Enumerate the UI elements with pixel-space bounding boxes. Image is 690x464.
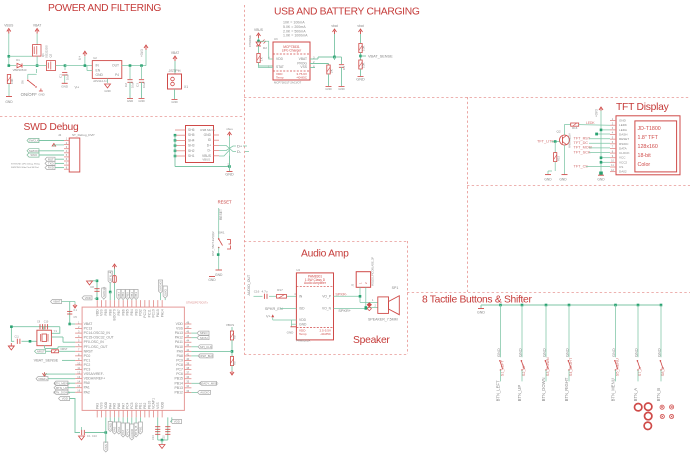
svg-text:PC9: PC9 [176,358,183,362]
svg-text:S8_B: S8_B [661,366,665,376]
svg-text:GND: GND [138,99,144,103]
svg-text:Q2: Q2 [557,130,561,134]
svg-text:GND: GND [338,87,344,91]
svg-text:OUT: OUT [112,64,119,68]
svg-text:C8: C8 [90,285,94,289]
svg-text:MISO: MISO [200,331,208,335]
svg-text:P4: P4 [115,73,119,77]
svg-text:PB12: PB12 [175,390,183,394]
svg-text:BTN_DOWN: BTN_DOWN [541,377,546,401]
svg-text:LEDK: LEDK [619,123,627,127]
svg-text:SWCLK: SWCLK [102,287,106,297]
svg-text:0.1: 0.1 [74,309,78,312]
svg-text:U2: U2 [93,56,97,60]
svg-text:PA0: PA0 [84,381,90,385]
svg-text:MOSI: MOSI [200,336,208,340]
svg-text:BTN_RIGHT: BTN_RIGHT [564,377,569,401]
svg-text:PC13: PC13 [84,327,93,331]
svg-text:vbat: vbat [357,24,363,28]
svg-text:PA10: PA10 [175,345,183,349]
svg-text:PA7: PA7 [121,429,125,435]
svg-text:VDDA/VREF+: VDDA/VREF+ [84,377,106,381]
svg-text:SWDIO: SWDIO [159,280,163,291]
svg-text:U4: U4 [296,268,300,272]
svg-text:BTN_UP: BTN_UP [56,386,68,390]
svg-text:10K: 10K [362,46,366,51]
svg-text:C13: C13 [92,435,97,438]
svg-text:GND: GND [559,178,567,182]
svg-text:VBUS: VBUS [254,28,264,32]
svg-text:10uF: 10uF [66,73,70,80]
svg-text:GND: GND [477,311,485,315]
svg-text:GND: GND [518,348,523,357]
svg-text:SP1: SP1 [392,286,399,290]
svg-text:VBAT_SENSE: VBAT_SENSE [34,359,59,363]
svg-text:Color: Color [638,162,651,168]
svg-text:+3V3: +3V3 [595,109,599,117]
svg-text:VBAT: VBAT [171,51,179,55]
svg-text:BTN_A: BTN_A [108,272,112,281]
svg-text:PC14-OSC32_IN: PC14-OSC32_IN [84,331,111,335]
svg-text:PA8: PA8 [177,354,183,358]
svg-text:AUDIO: AUDIO [200,391,210,395]
svg-text:GND: GND [325,87,331,91]
svg-text:GND: GND [215,273,223,277]
svg-text:GND: GND [611,348,616,357]
svg-text:GND: GND [104,89,110,93]
svg-text:SH1: SH1 [188,154,195,158]
svg-text:10uF: 10uF [142,81,146,88]
svg-text:VCC2: VCC2 [619,160,627,164]
svg-text:Speaker: Speaker [353,335,390,346]
svg-text:1.0K = 1000mA: 1.0K = 1000mA [283,34,308,38]
svg-text:D+: D+ [207,143,211,147]
svg-text:BTN_MENU: BTN_MENU [611,378,616,401]
svg-text:PA13: PA13 [175,331,183,335]
svg-text:GND: GND [5,100,13,104]
svg-text:TFT_SCK: TFT_SCK [574,150,591,154]
svg-text:D1: D1 [16,58,20,62]
svg-text:RESET: RESET [619,137,629,141]
svg-text:VREF+: VREF+ [38,377,48,381]
svg-text:CHARGE: CHARGE [248,35,252,47]
svg-text:5.0K = 200mA: 5.0K = 200mA [283,25,306,29]
svg-text:VBAT: VBAT [33,24,41,28]
svg-text:GND: GND [542,348,547,357]
svg-text:MCP73831T-2ACI/OT: MCP73831T-2ACI/OT [274,81,302,85]
svg-text:VSS: VSS [300,65,307,69]
svg-text:VO_N: VO_N [322,306,332,310]
svg-text:VBAT: VBAT [299,57,307,61]
svg-text:VDD: VDD [62,397,68,401]
svg-text:1.8" TFT: 1.8" TFT [638,135,659,141]
svg-text:DATA: DATA [619,146,628,150]
svg-text:Temp: Temp [299,332,307,336]
svg-text:PB6: PB6 [121,292,125,298]
svg-text:10K: 10K [10,79,14,84]
svg-text:VBUS: VBUS [226,323,234,327]
svg-text:BTN_A: BTN_A [633,388,638,402]
svg-text:GND: GND [127,99,133,103]
svg-text:18-bit: 18-bit [638,153,652,159]
svg-text:DASH: DASH [619,133,627,137]
svg-text:Temp: Temp [276,76,284,80]
svg-text:C1: C1 [59,74,63,78]
svg-text:BTN_UP: BTN_UP [517,385,522,402]
svg-text:BTN_MENU: BTN_MENU [54,381,70,385]
svg-text:PC15-OSC32_OUT: PC15-OSC32_OUT [84,336,115,340]
svg-text:USB Micro: USB Micro [200,128,215,132]
svg-text:SH4: SH4 [188,138,195,142]
svg-text:GND: GND [565,348,570,357]
svg-text:V+: V+ [266,315,272,319]
svg-text:2K: 2K [330,69,334,73]
svg-text:R15: R15 [556,155,560,161]
svg-text:SW1: SW1 [218,231,225,235]
svg-text:AUDIO_OUT: AUDIO_OUT [247,274,251,296]
svg-text:SPI_CLK: SPI_CLK [200,345,212,349]
svg-text:PC0: PC0 [84,354,91,358]
svg-text:RST_TACT-EVQQ2: RST_TACT-EVQQ2 [211,231,215,256]
svg-text:PA12: PA12 [175,336,183,340]
svg-text:PA1: PA1 [84,386,90,390]
svg-text:S7_A: S7_A [638,366,642,376]
svg-text:SH3: SH3 [188,144,195,148]
svg-text:VO_P: VO_P [322,294,332,298]
svg-text:READY_MISO: READY_MISO [199,381,219,385]
svg-text:Y1: Y1 [54,329,58,333]
svg-text:10uF: 10uF [131,81,135,88]
svg-text:PB1: PB1 [139,426,143,432]
svg-text:SPKR-: SPKR- [335,292,347,296]
svg-text:-40-85C: -40-85C [296,76,308,80]
svg-text:STM32F070C6Tx: STM32F070C6Tx [186,301,209,305]
svg-text:RESET: RESET [218,200,232,205]
svg-text:RS/DC: RS/DC [619,142,629,146]
svg-text:GND: GND [38,93,44,97]
svg-text:SH6: SH6 [188,128,195,132]
svg-text:PC1: PC1 [84,358,91,362]
svg-text:SH5: SH5 [188,133,195,137]
svg-text:SWO: SWO [30,153,38,157]
svg-text:2: 2 [364,282,368,284]
svg-text:PB14: PB14 [175,381,183,385]
svg-text:J4: J4 [58,133,62,137]
svg-text:4.7u: 4.7u [262,290,268,294]
svg-text:2.0K = 500mA: 2.0K = 500mA [283,29,306,33]
svg-text:RXD: RXD [48,166,54,170]
svg-text:PAM8301A: PAM8301A [296,339,310,343]
svg-text:PF1-OSC_OUT: PF1-OSC_OUT [84,345,109,349]
svg-text:SPKR+: SPKR+ [338,309,351,313]
svg-text:NRST: NRST [37,349,45,353]
svg-text:POWER AND FILTERING: POWER AND FILTERING [48,3,161,14]
svg-text:TFT Display: TFT Display [616,102,670,113]
svg-text:GND: GND [597,178,605,182]
svg-text:D-: D- [208,149,211,153]
svg-text:USB AND BATTERY CHARGING: USB AND BATTERY CHARGING [274,7,420,18]
svg-text:DISP_BLK: DISP_BLK [199,354,213,358]
svg-text:S1_LEFT: S1_LEFT [501,359,505,376]
svg-text:GND: GND [619,119,627,123]
svg-text:JSTPH: JSTPH [168,69,180,73]
svg-text:R9: R9 [233,361,237,365]
svg-text:R16: R16 [572,126,578,130]
svg-text:GND: GND [299,322,307,326]
svg-text:C2: C2 [124,83,128,87]
svg-text:LEDA: LEDA [619,128,628,132]
svg-text:PA14: PA14 [160,309,164,317]
svg-text:U3: U3 [274,37,278,41]
svg-text:PC3: PC3 [84,368,91,372]
svg-text:V+: V+ [78,56,82,60]
svg-text:C16: C16 [254,290,260,294]
svg-text:Q2: Q2 [49,53,53,57]
svg-text:GND: GND [225,173,234,177]
svg-text:GND: GND [634,348,639,357]
svg-text:SWD Debug: SWD Debug [24,122,79,133]
svg-text:PA11: PA11 [175,340,183,344]
svg-text:PF0-OSC_IN: PF0-OSC_IN [84,340,105,344]
svg-text:MMBT2222A: MMBT2222A [569,133,572,148]
svg-text:S6: S6 [21,80,25,84]
svg-text:ST_Debug_DVP: ST_Debug_DVP [72,133,95,137]
svg-text:D+: D+ [237,144,243,149]
svg-text:R17: R17 [277,288,283,292]
svg-text:D2: D2 [263,46,267,50]
svg-text:128x160: 128x160 [638,144,658,150]
svg-text:/SD: /SD [299,306,305,310]
svg-text:SPKR_EN: SPKR_EN [265,307,283,311]
svg-text:C11: C11 [15,336,20,339]
svg-text:S3_DOWN: S3_DOWN [546,357,550,376]
svg-text:GND: GND [171,100,177,104]
svg-text:GND: GND [657,348,662,357]
svg-text:1K: 1K [260,57,264,61]
svg-text:C3: C3 [136,83,140,87]
svg-text:CS: CS [619,165,623,169]
svg-text:D-: D- [237,149,242,154]
svg-text:MOLEX_PICOBLADE_2P: MOLEX_PICOBLADE_2P [371,257,374,287]
svg-text:VBAT: VBAT [84,322,94,326]
svg-text:PC2: PC2 [84,363,91,367]
svg-text:Audio Amplifier: Audio Amplifier [304,281,327,285]
svg-text:S4_RIGHT: S4_RIGHT [569,357,573,376]
svg-text:GND: GND [61,85,69,89]
svg-text:C14: C14 [152,435,155,440]
svg-text:GND: GND [544,178,552,182]
svg-text:AP2112-3.3: AP2112-3.3 [93,79,108,83]
svg-text:VBRS0540: VBRS0540 [13,68,27,72]
svg-text:SWCLK: SWCLK [29,139,39,143]
svg-text:VBAT: VBAT [53,300,61,304]
svg-text:BTN_B: BTN_B [656,388,661,402]
svg-text:ST/STLINK 14Pin Debug. Wiring: ST/STLINK 14Pin Debug. Wiring [11,164,40,166]
svg-text:VSS: VSS [176,327,184,331]
svg-text:TFT_DC: TFT_DC [574,141,589,145]
svg-text:Audio Amp: Audio Amp [301,249,349,260]
svg-text:vbus: vbus [226,127,233,131]
svg-text:BTN_DOWN: BTN_DOWN [53,390,70,394]
svg-text:RESET: RESET [219,209,223,220]
svg-text:R8: R8 [233,335,237,339]
svg-text:DA02: DA02 [619,170,627,174]
svg-text:SWO: SWO [163,288,167,296]
svg-text:GND: GND [287,331,295,335]
svg-text:C4: C4 [342,66,346,70]
svg-text:BTN_LEFT: BTN_LEFT [496,380,501,401]
svg-text:SH2: SH2 [188,149,195,153]
svg-text:S2_UP: S2_UP [522,364,526,376]
svg-text:8 Tactile Buttons & Shifter: 8 Tactile Buttons & Shifter [422,295,532,306]
svg-text:X1: X1 [184,85,188,89]
svg-text:VBUS: VBUS [202,158,210,162]
svg-text:PB13: PB13 [175,386,183,390]
svg-text:GND: GND [208,278,216,282]
svg-text:JD-T1800: JD-T1800 [638,126,661,132]
svg-text:GND: GND [356,78,365,82]
svg-text:+3V3: +3V3 [140,49,144,57]
svg-text:1: 1 [359,282,363,284]
svg-text:VCC: VCC [619,156,626,160]
svg-text:VDD: VDD [174,420,180,424]
svg-text:PA2: PA2 [84,390,90,394]
svg-text:PB15: PB15 [175,377,183,381]
svg-text:C10: C10 [44,321,49,324]
svg-text:VDD: VDD [85,296,91,300]
svg-text:VDD: VDD [276,57,284,61]
svg-text:VSSA/VREF-: VSSA/VREF- [84,372,104,376]
svg-text:LEDK: LEDK [586,121,595,125]
svg-text:GND: GND [496,348,501,357]
svg-text:PC7: PC7 [176,368,183,372]
svg-text:GND: GND [204,133,212,137]
svg-text:TFT_RST: TFT_RST [574,137,591,141]
svg-text:VBAT_SENSE: VBAT_SENSE [368,55,393,59]
svg-text:VDD: VDD [176,322,184,326]
svg-text:VSS: VSS [104,444,108,450]
svg-text:VDD: VDD [160,401,164,409]
svg-text:10K = 100mA: 10K = 100mA [283,21,305,25]
svg-text:NRST: NRST [84,349,94,353]
svg-text:STAT: STAT [276,65,284,69]
svg-text:S5_MENU: S5_MENU [616,358,620,376]
svg-text:ON/OFF: ON/OFF [21,92,38,97]
svg-text:GND: GND [96,73,104,77]
svg-text:PC6: PC6 [176,372,183,376]
svg-text:-40-85C: -40-85C [320,332,332,336]
svg-text:PC8: PC8 [176,363,183,367]
svg-text:VBUS: VBUS [4,24,14,28]
svg-text:LiPo Charger: LiPo Charger [282,49,302,53]
svg-text:10K: 10K [362,63,366,68]
svg-text:vbat: vbat [331,24,337,28]
svg-text:CLOCK: CLOCK [619,151,630,155]
svg-text:PA9: PA9 [177,349,183,353]
svg-text:SPEAKER_7.5MM: SPEAKER_7.5MM [368,317,398,321]
svg-text:V+: V+ [75,86,81,90]
svg-text:NRST: NRST [61,348,68,351]
svg-text:PB3: PB3 [134,292,138,298]
svg-text:0.1: 0.1 [87,435,91,438]
svg-text:SWDPIN1L Wide Pitch SM Pad: SWDPIN1L Wide Pitch SM Pad [11,166,39,169]
